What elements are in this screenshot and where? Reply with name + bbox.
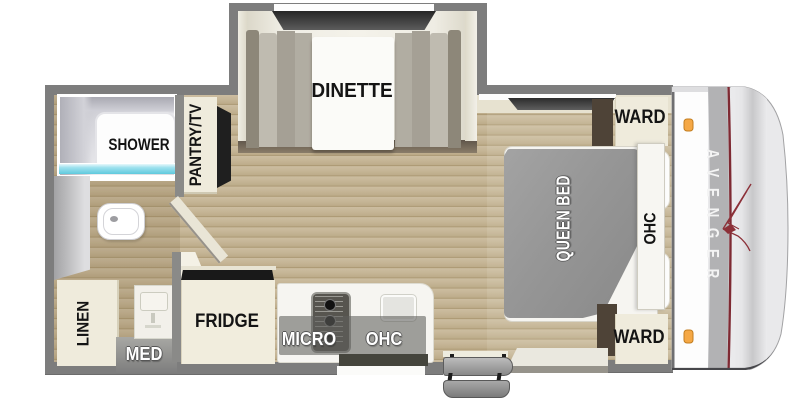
svg-text:AVENGER: AVENGER: [702, 149, 721, 289]
